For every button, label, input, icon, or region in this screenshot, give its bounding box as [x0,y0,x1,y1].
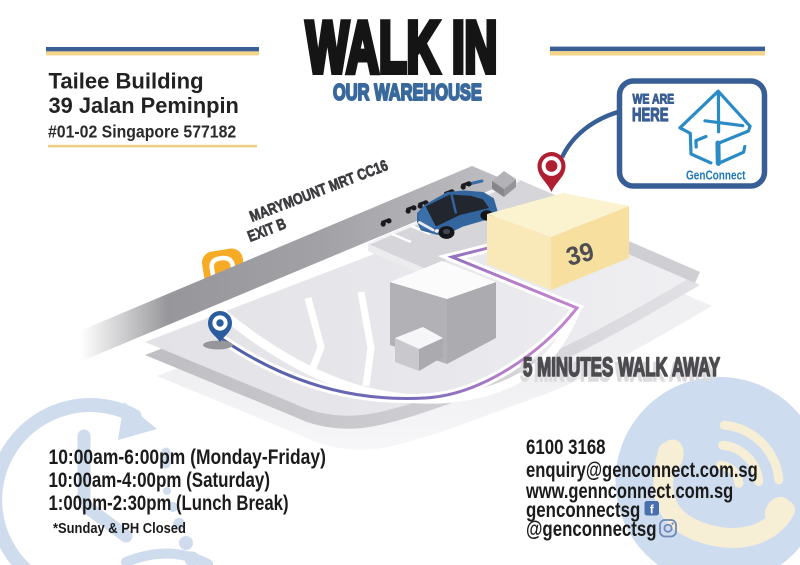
svg-text:OUR WAREHOUSE: OUR WAREHOUSE [333,81,482,106]
svg-text:1:00pm-2:30pm (Lunch Break): 1:00pm-2:30pm (Lunch Break) [49,492,289,515]
svg-text:GenConnect: GenConnect [686,168,746,183]
svg-text:*Sunday & PH Closed: *Sunday & PH Closed [53,519,186,536]
svg-text:Tailee Building: Tailee Building [49,68,204,93]
svg-text:10:00am-6:00pm (Monday-Friday): 10:00am-6:00pm (Monday-Friday) [49,445,326,469]
svg-text:HERE: HERE [632,105,669,126]
svg-text:WALK IN: WALK IN [306,6,497,88]
svg-text:6100 3168: 6100 3168 [526,436,606,459]
svg-text:5 MINUTES WALK AWAY: 5 MINUTES WALK AWAY [523,352,720,382]
svg-text:39 Jalan Peminpin: 39 Jalan Peminpin [49,93,239,118]
svg-text:#01-02 Singapore 577182: #01-02 Singapore 577182 [48,122,236,142]
svg-text:@genconnectsg: @genconnectsg [526,518,657,541]
svg-text:10:00am-4:00pm (Saturday): 10:00am-4:00pm (Saturday) [49,468,271,492]
